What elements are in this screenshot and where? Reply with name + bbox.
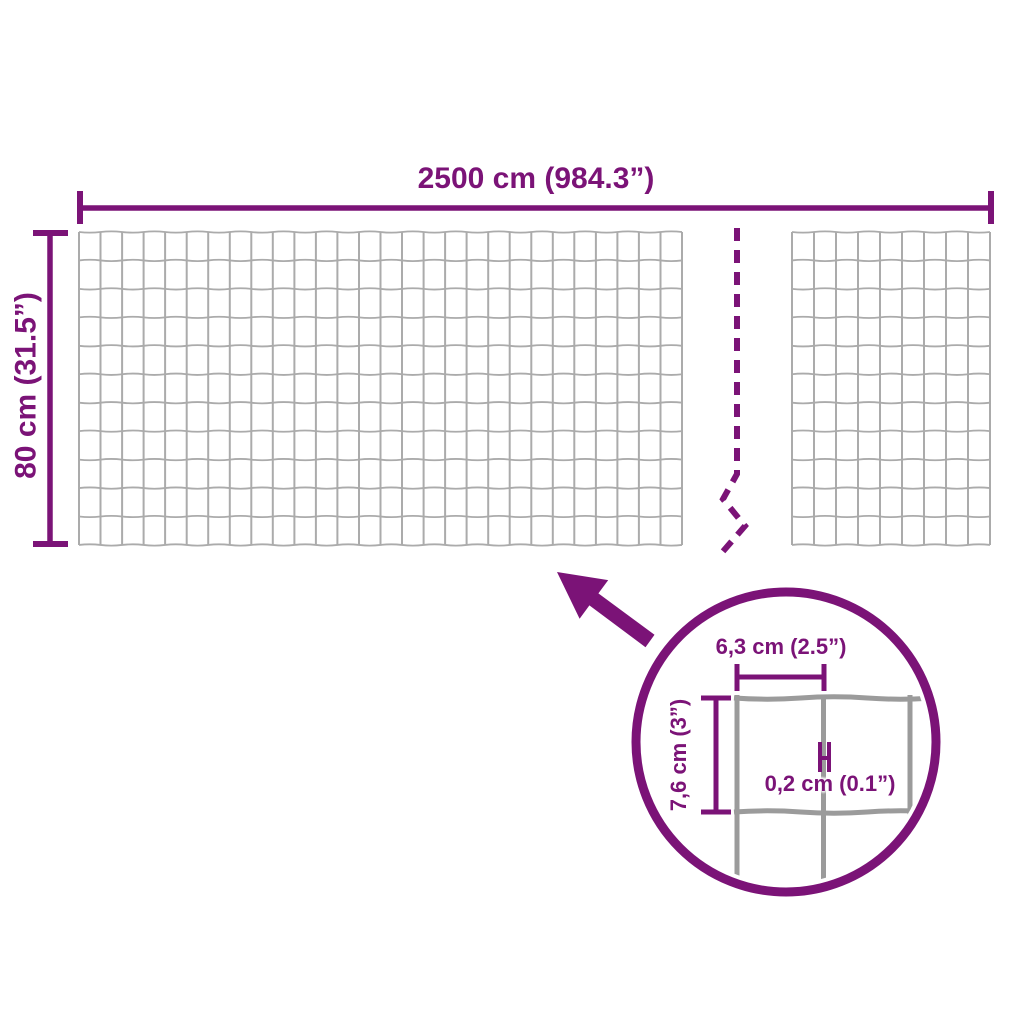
- detail-wire-horizontal: [734, 697, 934, 699]
- mesh-wire-horizontal: [79, 317, 682, 318]
- mesh-wire-horizontal: [79, 231, 682, 232]
- mesh-wire-horizontal: [792, 487, 990, 488]
- mesh-wire-horizontal: [792, 345, 990, 346]
- mesh-wire-horizontal: [792, 430, 990, 431]
- mesh-wire-horizontal: [792, 260, 990, 261]
- mesh-wire-horizontal: [79, 345, 682, 346]
- mesh-wire-horizontal: [79, 544, 682, 545]
- mesh-wire-horizontal: [79, 430, 682, 431]
- mesh-wire-horizontal: [792, 544, 990, 545]
- mesh-wire-horizontal: [79, 260, 682, 261]
- height-dimension-label: 80 cm (31.5”): [8, 276, 45, 496]
- break-line: [719, 228, 745, 556]
- detail-wire-horizontal: [734, 811, 934, 813]
- mesh-wire-horizontal: [79, 374, 682, 375]
- mesh-wire-horizontal: [792, 402, 990, 403]
- mesh-wire-horizontal: [79, 459, 682, 460]
- mesh-wire-horizontal: [79, 516, 682, 517]
- width-dimension-label: 2500 cm (984.3”): [336, 160, 736, 197]
- detail-mesh-width-label: 6,3 cm (2.5”): [671, 634, 891, 660]
- mesh-wire-horizontal: [792, 231, 990, 232]
- mesh-wire-horizontal: [79, 487, 682, 488]
- fence-mesh-right: [792, 231, 990, 545]
- detail-wire-thickness-label: 0,2 cm (0.1”): [720, 771, 940, 797]
- mesh-wire-horizontal: [792, 288, 990, 289]
- product-dimension-diagram: 2500 cm (984.3”) 80 cm (31.5”) 6,3 cm (2…: [0, 0, 1024, 1024]
- mesh-wire-horizontal: [792, 516, 990, 517]
- fence-mesh-left: [79, 231, 682, 545]
- mesh-wire-horizontal: [79, 288, 682, 289]
- zoom-arrow-icon: [557, 572, 655, 647]
- mesh-wire-horizontal: [792, 374, 990, 375]
- mesh-wire-horizontal: [79, 402, 682, 403]
- mesh-wire-horizontal: [792, 317, 990, 318]
- detail-mesh-height-label: 7,6 cm (3”): [666, 675, 692, 835]
- diagram-drawing: [0, 0, 1024, 1024]
- mesh-wire-horizontal: [792, 459, 990, 460]
